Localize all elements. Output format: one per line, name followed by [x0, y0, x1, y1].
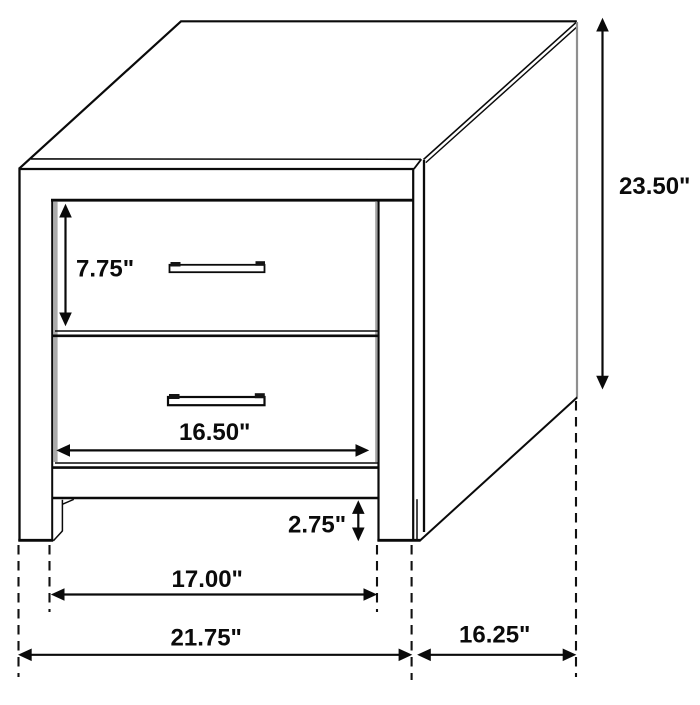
svg-text:17.00": 17.00" [172, 566, 243, 593]
svg-text:16.50": 16.50" [179, 419, 250, 446]
svg-text:7.75": 7.75" [76, 256, 134, 283]
svg-text:2.75": 2.75" [288, 512, 346, 539]
svg-text:21.75": 21.75" [171, 625, 242, 652]
svg-text:23.50": 23.50" [619, 173, 690, 200]
svg-text:16.25": 16.25" [459, 622, 530, 649]
